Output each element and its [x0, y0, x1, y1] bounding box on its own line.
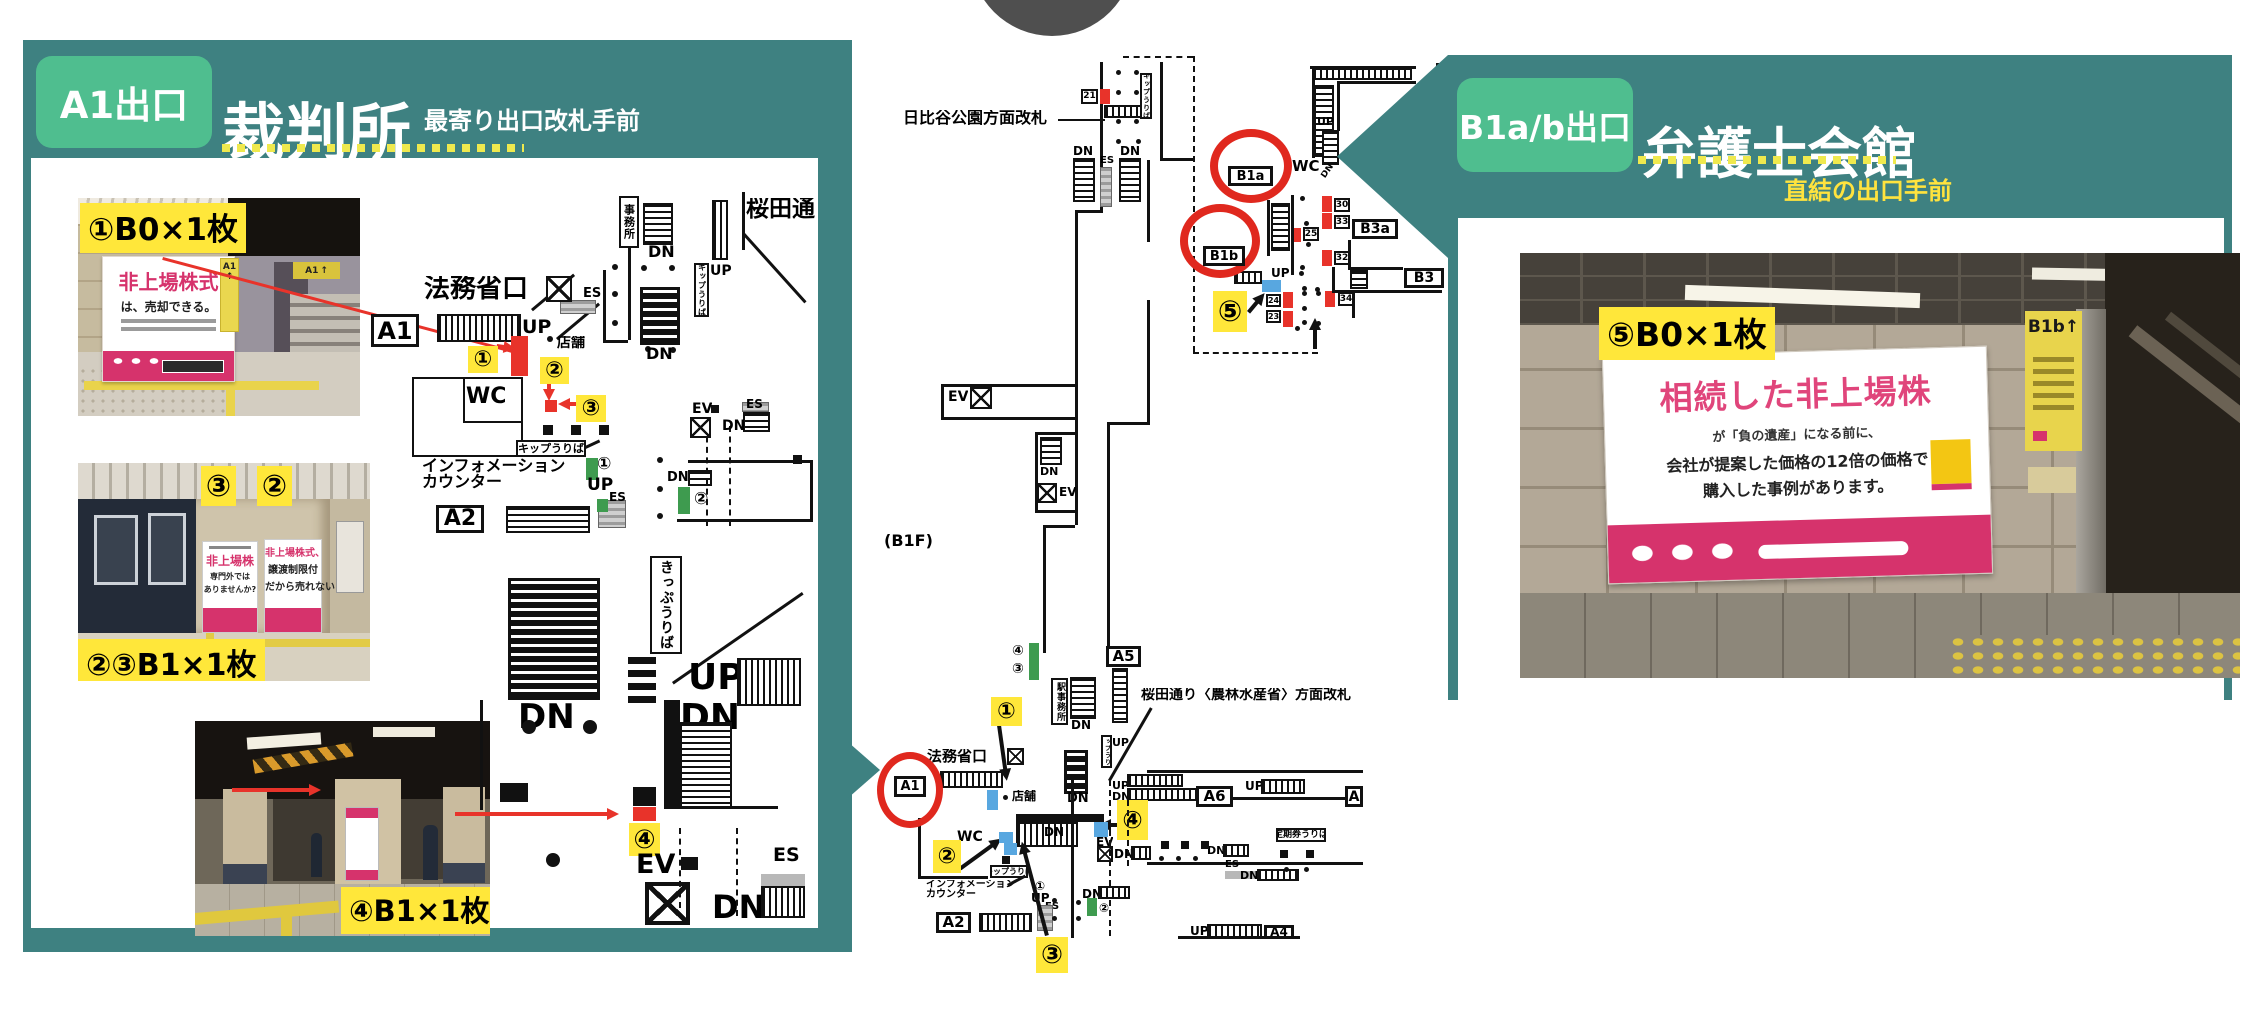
- poster-headline: 非上場株式、: [265, 544, 321, 559]
- wall: [1147, 862, 1363, 865]
- red-marker: [1322, 213, 1332, 229]
- wall: [1107, 422, 1150, 425]
- person-silhouette: [311, 833, 322, 877]
- wall: [1147, 300, 1150, 422]
- photo-concourse: ④B1×1枚: [195, 721, 490, 936]
- area-dash: [1193, 352, 1318, 354]
- slide-canvas: A1出口 裁判所 最寄り出口改札手前 B1a/b出口 弁護士会館 直結の出口手前…: [0, 0, 2247, 1020]
- stairs: [1098, 886, 1130, 899]
- wall-panel: [148, 513, 186, 585]
- arrow-from-3: [1021, 845, 1049, 936]
- dot: [1134, 119, 1139, 124]
- dn-label: DN: [1044, 826, 1064, 838]
- pillar: [1002, 856, 1010, 864]
- search-pill: [1758, 541, 1908, 559]
- exit-a7-box-partial: A: [1345, 786, 1363, 807]
- red-marker: [1100, 89, 1110, 104]
- b1ab-panel-subtitle: 直結の出口手前: [1700, 171, 1952, 206]
- pillar: [1280, 850, 1288, 858]
- poster-footer-band: [265, 608, 321, 632]
- dot: [1159, 856, 1164, 861]
- stairs: [1070, 677, 1096, 719]
- stairs: [1350, 270, 1368, 289]
- green-marker: [1029, 643, 1039, 662]
- stairs: [1261, 779, 1305, 794]
- b1b-wall-sign: B1b↑: [2025, 311, 2082, 451]
- up-label: UP: [1112, 780, 1129, 791]
- stairs: [1312, 68, 1412, 80]
- a1-overhead-sign: A1↑: [293, 262, 340, 279]
- stairs: [1073, 158, 1095, 202]
- ad-box-32: 32: [1334, 251, 1350, 265]
- pointer-tick: [1007, 875, 1026, 887]
- photo5-label: ⑤B0×1枚: [1599, 307, 1775, 360]
- wall: [1312, 66, 1315, 158]
- poster-line2: 専門外では: [203, 571, 257, 582]
- homusho-guchi-label: 法務省口: [927, 749, 987, 764]
- dot: [1076, 900, 1081, 905]
- photo2-label: ②③B1×1枚: [78, 639, 265, 681]
- dot: [1316, 321, 1321, 326]
- wc-label: WC: [1292, 159, 1320, 174]
- stairs: [1207, 924, 1262, 938]
- poster-line3: だから売れない: [265, 578, 321, 593]
- kippu-uriba-vlabel: キップうりば: [1101, 735, 1112, 768]
- stairs: [979, 913, 1032, 932]
- pos-5-badge: ⑤: [1213, 291, 1247, 332]
- exit-a2-box: A2: [936, 912, 971, 933]
- arrow-from-1: [997, 725, 1008, 777]
- poster-line2: 譲渡制限付: [265, 561, 321, 576]
- stairs: [1112, 668, 1128, 723]
- red-marker: [1283, 292, 1293, 308]
- dot: [1176, 856, 1181, 861]
- pillar: [1096, 814, 1104, 822]
- dot: [1300, 196, 1305, 201]
- pos-3-tag: ③: [201, 466, 236, 506]
- ad-box-33: 33: [1334, 215, 1350, 229]
- ad-poster-1: 非上場株式 は、売却できる。: [102, 256, 235, 382]
- ev-box-icon: [970, 387, 992, 409]
- wall: [1043, 525, 1075, 528]
- dot: [1284, 867, 1289, 872]
- wall: [1310, 66, 1416, 69]
- ad-box-25: 25: [1303, 227, 1319, 241]
- ev-box-icon: [1097, 846, 1113, 862]
- ad-box-23: 23: [1266, 310, 1281, 323]
- exit-b3-box: B3: [1404, 268, 1444, 288]
- stairs: [1119, 158, 1141, 202]
- stairs: [1271, 203, 1290, 251]
- num-1-badge: ①: [1035, 880, 1045, 892]
- wall: [1348, 240, 1351, 267]
- information-counter-label: インフォメーション カウンター: [926, 880, 1016, 900]
- red-marker: [1322, 196, 1332, 212]
- dot: [1300, 265, 1305, 270]
- person-silhouette: [423, 825, 438, 880]
- photo3-label: ④B1×1枚: [341, 887, 490, 934]
- left-panel-pointer-wedge: [848, 742, 880, 798]
- eki-jimusho-label: 駅事務所: [1051, 678, 1068, 725]
- poster-marker-blue: [1094, 822, 1108, 837]
- ad-box-30: 30: [1334, 198, 1350, 212]
- photo-b1b-corridor: 相続した非上場株 が「負の遺産」になる前に、 会社が提案した価格の12倍の価格で…: [1520, 253, 2240, 678]
- sign-text: A1: [305, 266, 318, 276]
- tactile-paving: [84, 381, 319, 390]
- stairs: [1127, 788, 1207, 801]
- kippu-uriba-vlabel: キップうりば: [1140, 73, 1152, 119]
- pillar: [1201, 841, 1209, 849]
- wall: [1035, 510, 1075, 513]
- wall: [1071, 780, 1074, 938]
- wall: [1160, 158, 1193, 161]
- wall: [1035, 432, 1075, 435]
- es-label: ES: [1045, 902, 1059, 912]
- green-marker: [1087, 898, 1097, 916]
- stairs: [1223, 844, 1249, 857]
- small-sign: [2028, 467, 2076, 493]
- arrow-from-2: [959, 839, 999, 870]
- dot: [1116, 139, 1121, 144]
- wall: [1075, 210, 1078, 525]
- ticket-gate: [1234, 271, 1262, 284]
- wall-block: [1016, 814, 1102, 822]
- dot: [1003, 795, 1008, 800]
- passage-opening: [273, 799, 335, 881]
- pointer-line: [1108, 707, 1152, 781]
- dot: [1306, 242, 1311, 247]
- dn-label: DN: [1120, 145, 1140, 157]
- tactile-paving: [1948, 635, 2240, 678]
- dot: [1315, 287, 1320, 292]
- exit-b3a-box: B3a: [1352, 219, 1398, 239]
- stairs-dark: [1064, 750, 1088, 794]
- b1b-ring: [1180, 204, 1260, 278]
- up-label: UP: [1190, 925, 1209, 937]
- dn-label: DN: [1114, 848, 1134, 860]
- poster-headline: 非上場株式: [103, 266, 234, 295]
- num-3-badge: ③: [1012, 662, 1024, 676]
- sakurada-gate-label: 桜田通り〈農林水産省〉方面改札: [1141, 688, 1351, 702]
- es-label: ES: [1100, 156, 1114, 166]
- dot: [1052, 898, 1057, 903]
- wall: [918, 876, 988, 879]
- wall-panel: [94, 515, 138, 585]
- dot: [1134, 70, 1139, 75]
- es-label: ES: [1225, 860, 1239, 870]
- dot: [1316, 291, 1321, 296]
- dot: [1116, 70, 1121, 75]
- ev-label: EV: [1059, 486, 1076, 498]
- wall: [1043, 525, 1046, 653]
- ev-label: EV: [1096, 836, 1113, 848]
- ad-poster-4: [345, 807, 379, 881]
- up-arrow-icon: ↑: [320, 266, 328, 276]
- poster-marker-blue: [987, 790, 998, 810]
- a1-wall-sign: A1↑: [220, 258, 239, 332]
- dot: [1116, 90, 1121, 95]
- wall: [1291, 195, 1294, 275]
- pillar-base: [223, 864, 267, 884]
- dot: [1193, 856, 1198, 861]
- up-arrow-icon: ↑: [226, 272, 234, 282]
- wall: [1100, 62, 1103, 210]
- b1ab-exit-badge-label: B1a/b出口: [1459, 101, 1631, 149]
- kippu-uriba-label: キップうりば: [990, 865, 1028, 878]
- teikiken-uriba-label: 定期券うりば: [1276, 828, 1326, 842]
- num-2-badge: ②: [1099, 902, 1109, 914]
- queue-line: [1127, 780, 1129, 866]
- wall: [1147, 770, 1363, 773]
- poster-headline: 相続した非上場株: [1603, 363, 1987, 422]
- tactile-paving: [281, 916, 292, 936]
- dot: [1302, 286, 1307, 291]
- pillar: [1306, 850, 1314, 858]
- wall: [1352, 292, 1355, 318]
- dot: [1116, 119, 1121, 124]
- up-label: UP: [1112, 737, 1129, 748]
- red-marker: [1283, 311, 1293, 327]
- ticket-gate: [1104, 105, 1144, 118]
- stairs: [1257, 869, 1299, 881]
- wall: [1337, 81, 1340, 131]
- stairs: [1040, 437, 1062, 465]
- area-dash: [1193, 56, 1195, 352]
- red-marker: [1325, 291, 1335, 307]
- up-label: UP: [1317, 116, 1334, 127]
- right-panel-pointer-wedge: [1337, 55, 1448, 258]
- pos-3-badge: ③: [1036, 937, 1068, 973]
- wc-label: WC: [957, 830, 983, 844]
- exit-a4-box-partial: A4: [1264, 925, 1294, 939]
- dot: [1304, 221, 1309, 226]
- a1-exit-badge: A1出口: [36, 56, 212, 148]
- pos-4-badge: ④: [1117, 800, 1148, 840]
- ad-box-21: 21: [1081, 89, 1098, 104]
- photo1-label: ①B0×1枚: [80, 203, 246, 253]
- stairs: [1322, 130, 1339, 165]
- escalator: [1100, 167, 1112, 207]
- sign-text: B1b↑: [2028, 317, 2079, 337]
- wall: [1338, 81, 1416, 84]
- sign-chip: [2033, 431, 2047, 441]
- wall: [1160, 62, 1163, 158]
- pillar: [1181, 841, 1189, 849]
- poster-smallprint: [103, 319, 234, 331]
- stairs: [1016, 822, 1078, 847]
- red-marker: [1291, 228, 1301, 242]
- pos-1-badge: ①: [991, 697, 1022, 726]
- dot: [1304, 867, 1309, 872]
- dot: [1076, 916, 1081, 921]
- hibiya-gate-label: 日比谷公園方面改札: [903, 110, 1047, 126]
- dot: [1302, 291, 1307, 296]
- wall: [1107, 422, 1110, 648]
- poster-footer-band: [103, 351, 234, 381]
- wall: [941, 417, 1075, 420]
- wall: [1232, 797, 1363, 800]
- dot: [1299, 271, 1304, 276]
- ad-poster-2: 非上場株式、 譲渡制限付 だから売れない: [264, 539, 322, 633]
- dot: [1295, 326, 1300, 331]
- dn-label: DN: [1040, 466, 1058, 477]
- pillar-base: [443, 863, 485, 883]
- stairs: [940, 771, 1003, 788]
- stairs: [1314, 85, 1334, 157]
- wall: [1035, 432, 1038, 510]
- up-label: UP: [1031, 892, 1050, 904]
- up-arrow: [1313, 322, 1317, 349]
- dot: [1134, 90, 1139, 95]
- title-dotted-underline: [1638, 156, 1896, 164]
- dn-label: DN: [1207, 845, 1225, 856]
- arrow-to-4c: [1103, 823, 1117, 827]
- ad-poster-5: 相続した非上場株 が「負の遺産」になる前に、 会社が提案した価格の12倍の価格で…: [1602, 346, 1993, 585]
- poster-line2: は、売却できる。: [103, 298, 234, 315]
- arrow-to-5: [1247, 295, 1264, 314]
- wall: [918, 818, 921, 878]
- poster-marker-blue: [999, 832, 1013, 843]
- wall: [1147, 160, 1150, 242]
- num-4-badge: ④: [1012, 644, 1024, 658]
- ad-box-24: 24: [1266, 294, 1281, 307]
- poster-smallprint: [209, 546, 251, 549]
- notice-frame: [336, 521, 364, 593]
- escalator: [1037, 905, 1053, 931]
- wall: [1075, 210, 1103, 213]
- gate-x-icon: [1007, 748, 1024, 765]
- exit-b1a-box: B1a: [1228, 166, 1273, 186]
- poster-yellow-badge: [1930, 439, 1971, 484]
- poster-line3: ありませんか?: [203, 584, 257, 595]
- dn-label: DN: [1071, 719, 1091, 731]
- escalator-band: [1225, 871, 1255, 879]
- dot: [1136, 139, 1141, 144]
- stairs: [1127, 774, 1183, 787]
- poster-marker-blue: [1004, 843, 1017, 855]
- sign-text: A1: [223, 262, 236, 272]
- wall: [1348, 267, 1403, 270]
- title-dotted-underline: [222, 144, 524, 152]
- up-label: UP: [1271, 267, 1290, 279]
- ad-poster-3: 非上場株 専門外では ありませんか?: [202, 541, 258, 633]
- dn-label: DN: [1073, 145, 1093, 157]
- photo-a1-corridor: 非上場株式 は、売却できる。 A1↑ A1↑ ①B0×1枚: [78, 198, 360, 416]
- exit-a1-box: A1: [894, 776, 926, 797]
- dn-label: DN: [1240, 870, 1258, 881]
- ad-box-34: 34: [1338, 292, 1354, 306]
- red-marker: [1322, 250, 1332, 266]
- area-dash: [1123, 56, 1193, 58]
- pointer-line: [1058, 119, 1105, 121]
- green-marker: [1029, 661, 1039, 680]
- exit-b1b-box: B1b: [1203, 246, 1245, 266]
- tenpo-label: 店舗: [1012, 790, 1036, 802]
- wall: [1178, 936, 1300, 939]
- a1-ring: [877, 752, 943, 828]
- pos-2-tag: ②: [257, 466, 292, 506]
- dn-label: DN: [1082, 888, 1102, 900]
- ceiling-light: [373, 727, 435, 737]
- tactile-paving: [226, 381, 235, 416]
- a1-panel-subtitle: 最寄り出口改札手前: [424, 101, 640, 136]
- stairs: [1131, 846, 1151, 860]
- poster-footer-band: [1608, 515, 1992, 584]
- poster-footer-band: [203, 608, 257, 632]
- dot: [1052, 916, 1057, 921]
- queue-line: [1109, 780, 1111, 936]
- page-dot: [970, 0, 1134, 36]
- wall: [941, 384, 944, 417]
- poster-headline: 非上場株: [203, 552, 257, 569]
- floor-label: (B1F): [884, 533, 933, 549]
- exit-a5-box: A5: [1106, 646, 1141, 667]
- a1-panel-title: 裁判所: [222, 102, 411, 165]
- exit-a6-box: A6: [1196, 786, 1233, 807]
- up-label: UP: [1245, 780, 1264, 792]
- search-pill: [162, 360, 224, 373]
- pos-2-badge: ②: [933, 840, 961, 873]
- stairs: [290, 294, 360, 352]
- wall: [1332, 267, 1335, 292]
- b1ab-exit-badge: B1a/b出口: [1457, 78, 1633, 172]
- dn-label: DN: [1067, 792, 1089, 805]
- wall: [1332, 290, 1442, 293]
- poster-5-marker: [1262, 280, 1281, 292]
- dot: [1302, 306, 1307, 311]
- ev-box-icon: [1037, 483, 1057, 503]
- wall: [941, 384, 1075, 387]
- b1a-ring: [1210, 129, 1292, 203]
- pillar: [1161, 841, 1169, 849]
- photo-pillar-posters: 非上場株 専門外では ありませんか? 非上場株式、 譲渡制限付 だから売れない …: [78, 463, 370, 681]
- a1-exit-badge-label: A1出口: [60, 75, 188, 129]
- dn-label: DN: [1320, 163, 1336, 180]
- dn-label: DN: [1112, 791, 1130, 802]
- ev-label: EV: [948, 390, 968, 404]
- dot: [1302, 320, 1307, 325]
- wall: [1267, 200, 1270, 256]
- ceiling-dark: [228, 198, 360, 256]
